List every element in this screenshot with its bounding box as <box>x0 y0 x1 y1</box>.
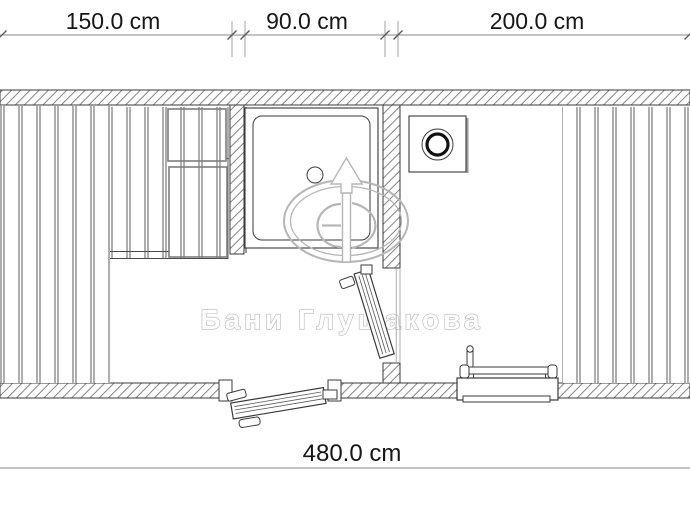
bench-tier-upper <box>168 109 226 161</box>
dim-label-480: 480.0 cm <box>303 440 402 467</box>
watermark-text: Бани Глушакова <box>200 304 483 335</box>
dim-label-200: 200.0 cm <box>490 8 585 34</box>
dim-label-150: 150.0 cm <box>66 8 161 34</box>
dim-label-90: 90.0 cm <box>266 8 348 34</box>
sauna-benches <box>0 106 229 383</box>
heater <box>409 116 468 173</box>
top-wall <box>0 90 690 105</box>
partition-sauna-shower <box>230 105 244 254</box>
bench-tier-lower <box>169 167 227 257</box>
partition-shower-room-bottom <box>383 363 400 383</box>
entrance-door <box>219 380 341 429</box>
entrance-door-hinge <box>323 390 337 399</box>
bottom-dimension: 480.0 cm <box>0 440 690 468</box>
entrance-door-handle <box>239 417 261 428</box>
drain-icon <box>307 167 323 183</box>
bench-band-left <box>0 106 110 383</box>
shower-door-hinge <box>361 265 372 274</box>
wash-bench <box>457 346 558 402</box>
floor-plan-canvas: 150.0 cm 90.0 cm 200.0 cm <box>0 0 690 510</box>
top-dimension: 150.0 cm 90.0 cm 200.0 cm <box>0 8 690 57</box>
bottom-wall-left <box>0 383 220 398</box>
right-room-planks <box>562 107 690 383</box>
shower-door-handle <box>339 276 355 289</box>
